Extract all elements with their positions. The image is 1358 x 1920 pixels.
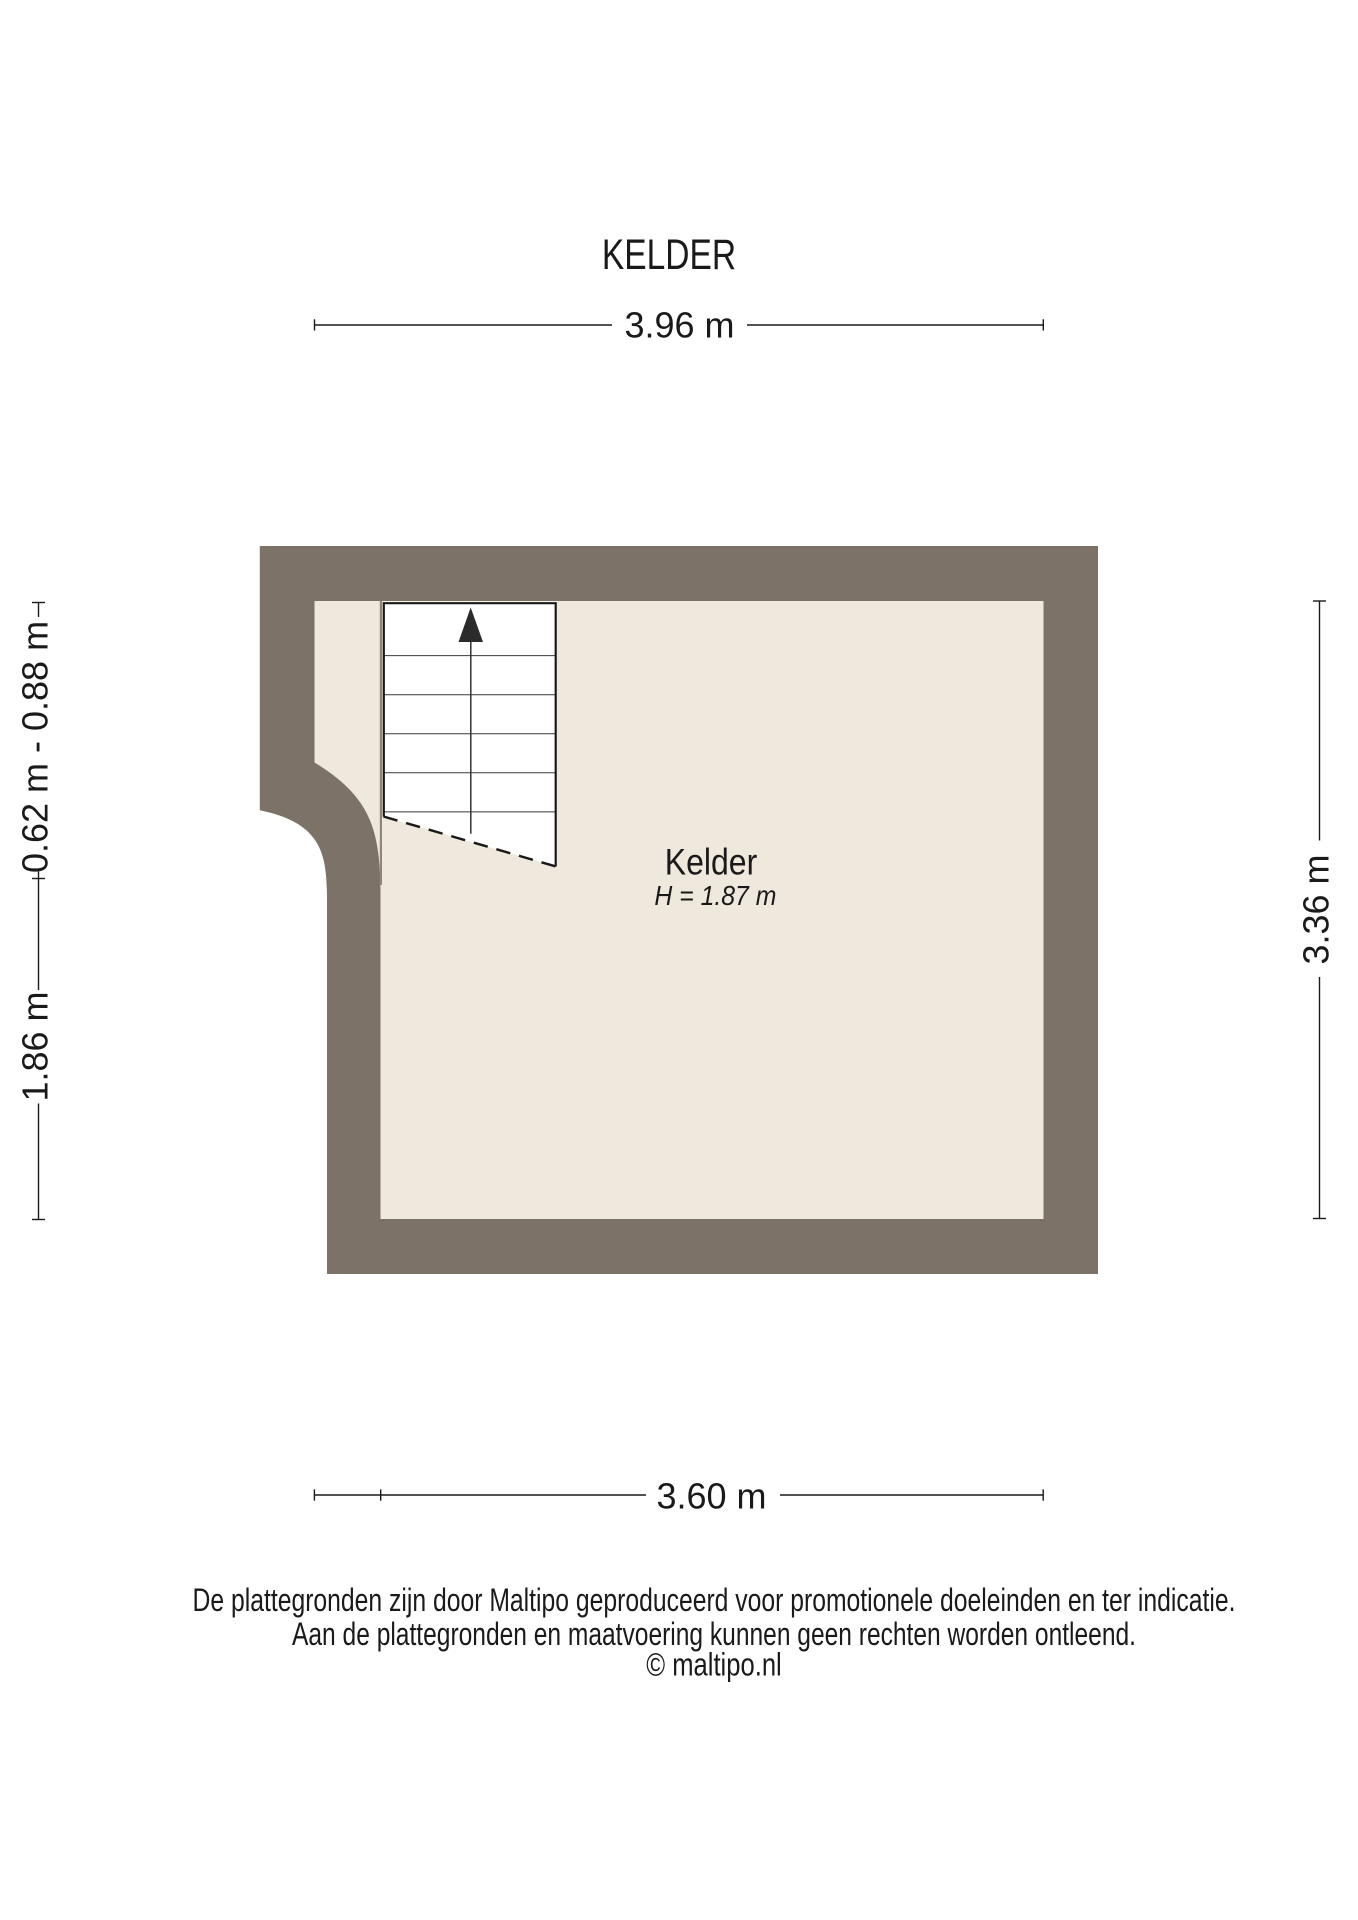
svg-text:H = 1.87 m: H = 1.87 m <box>654 879 776 911</box>
svg-text:Kelder: Kelder <box>665 842 757 883</box>
svg-text:0.62 m - 0.88 m: 0.62 m - 0.88 m <box>15 621 56 873</box>
svg-text:3.96 m: 3.96 m <box>624 305 734 346</box>
svg-text:De plattegronden zijn door Mal: De plattegronden zijn door Maltipo gepro… <box>193 1583 1236 1619</box>
svg-text:3.36 m: 3.36 m <box>1296 854 1337 964</box>
svg-text:© maltipo.nl: © maltipo.nl <box>646 1648 781 1683</box>
svg-text:KELDER: KELDER <box>602 231 736 279</box>
svg-text:3.60 m: 3.60 m <box>656 1476 766 1517</box>
svg-text:1.86 m: 1.86 m <box>15 991 56 1101</box>
